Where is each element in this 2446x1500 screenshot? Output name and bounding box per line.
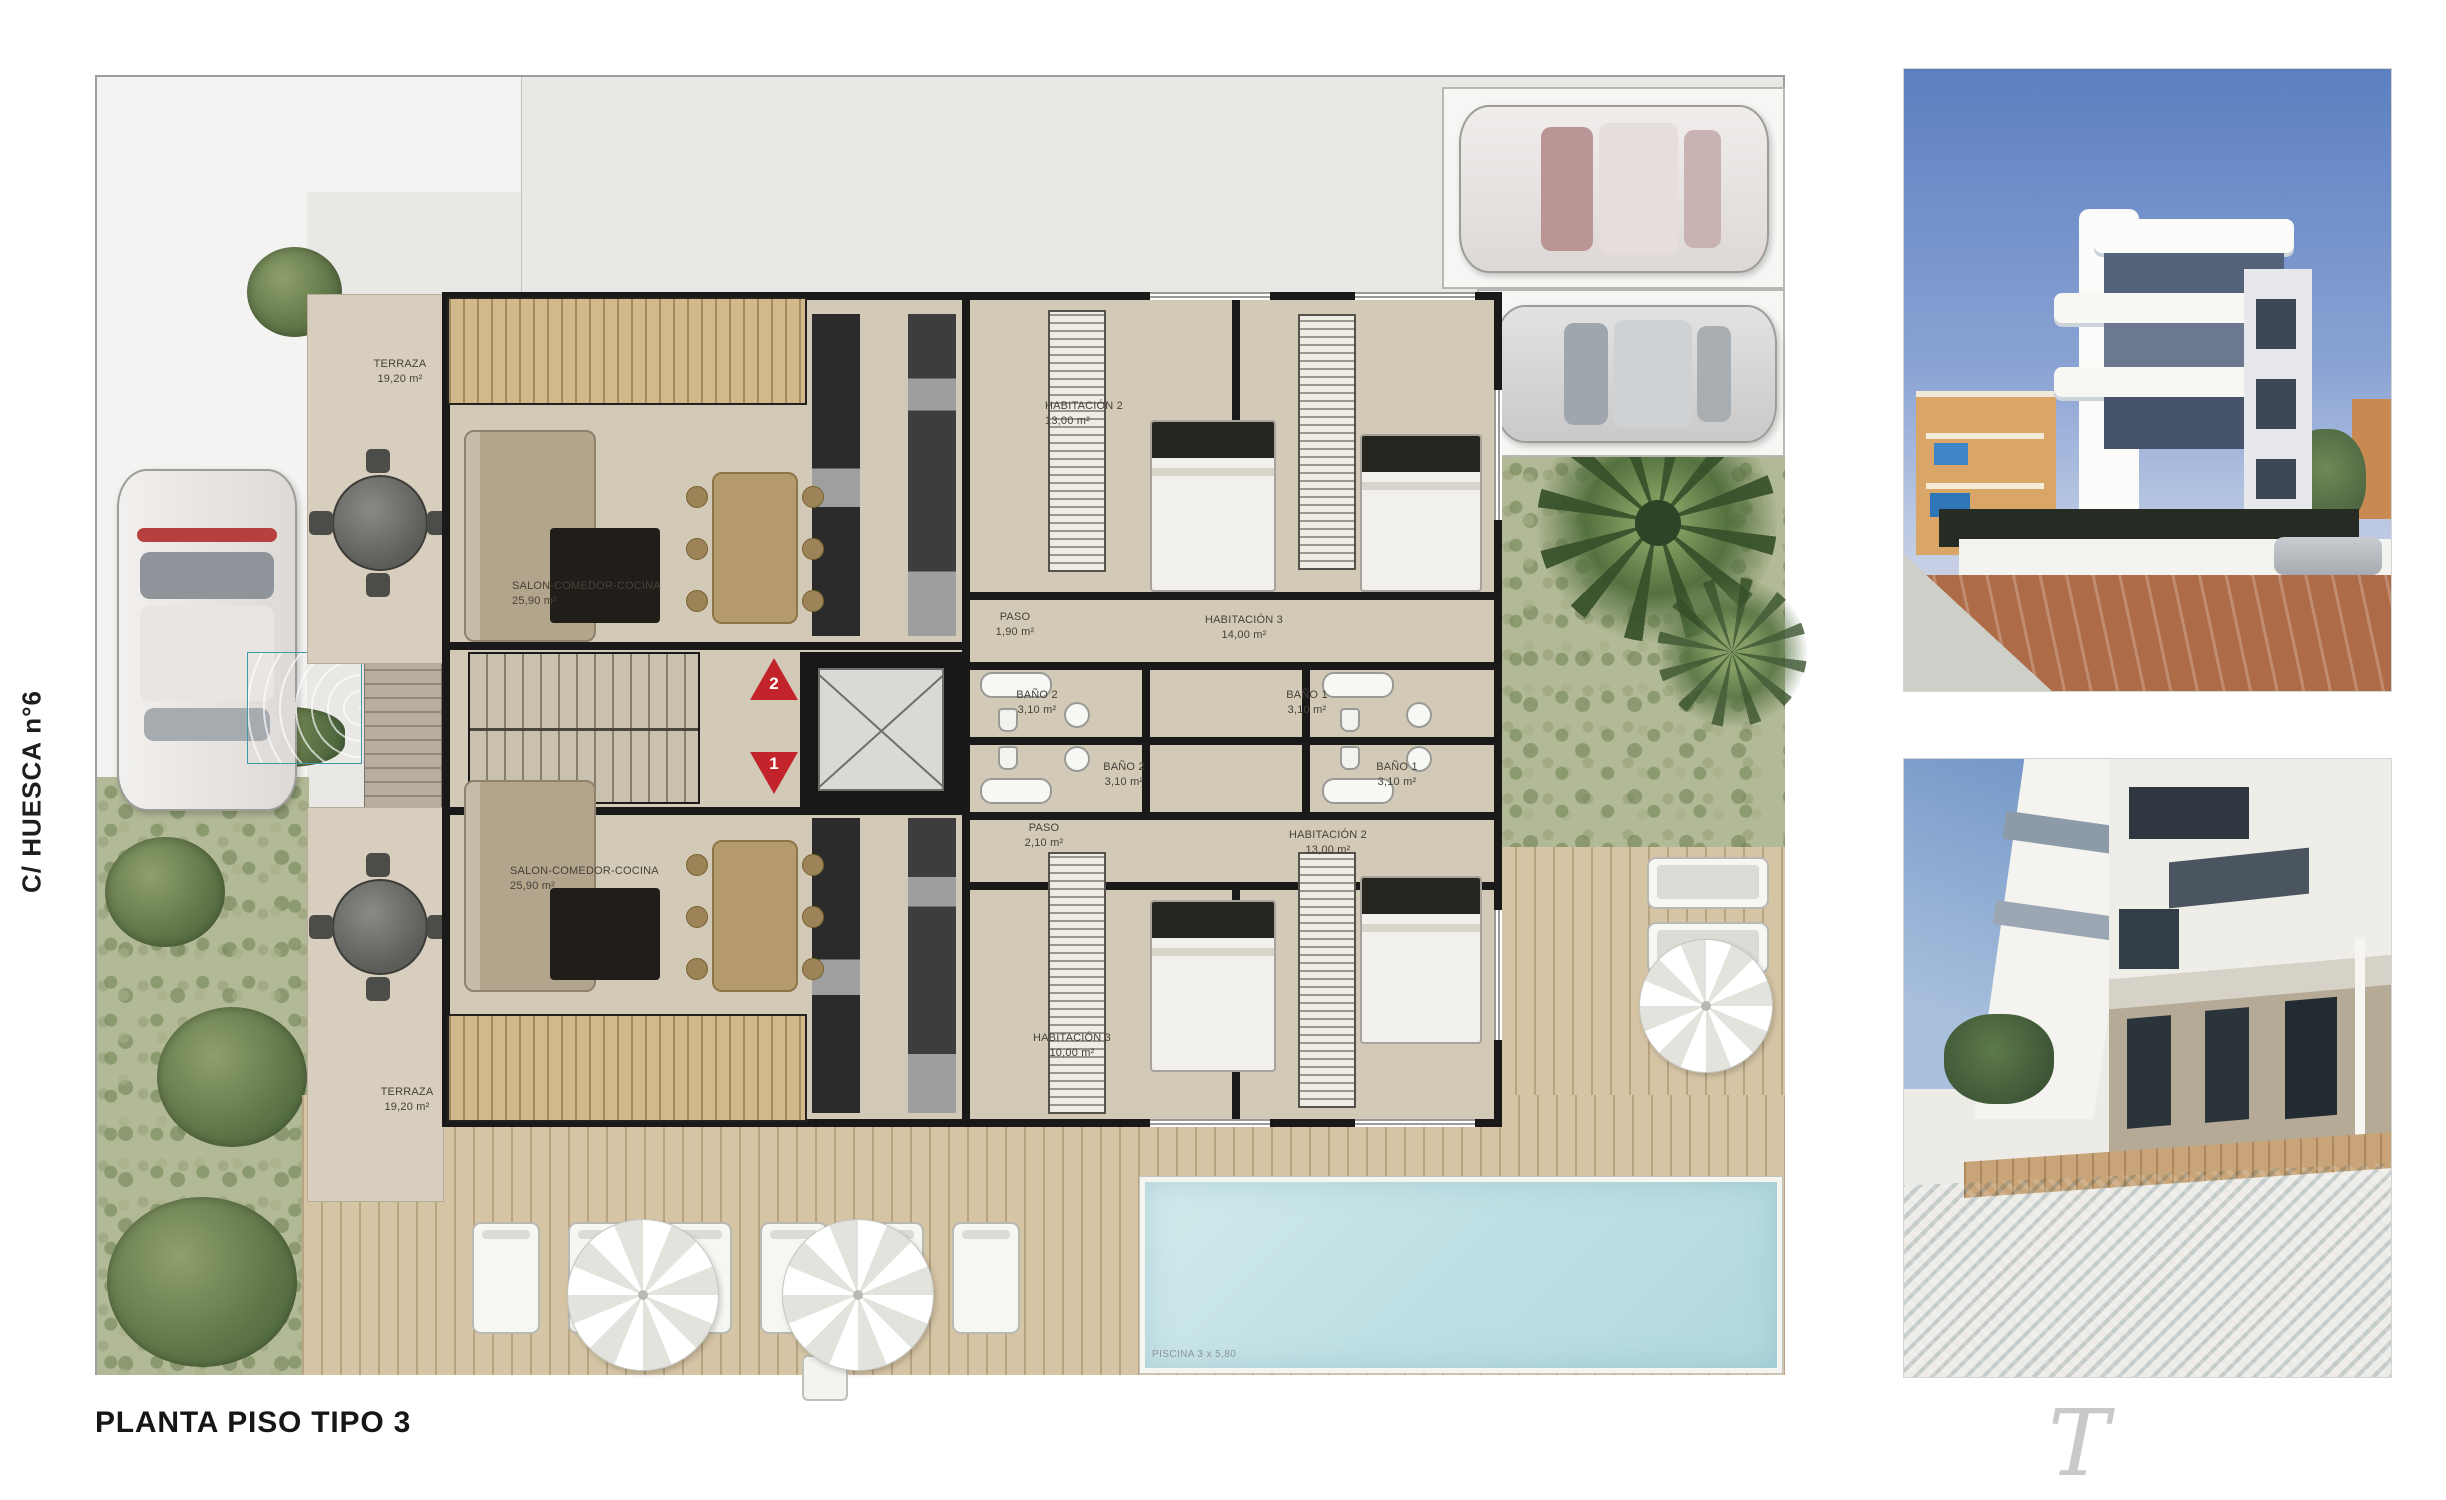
- room-label-habitacion2-lower: HABITACIÓN 213,00 m²: [1289, 828, 1367, 858]
- lounger-pad: [482, 1230, 530, 1239]
- umbrella: [1639, 939, 1773, 1073]
- wardrobe: [1048, 310, 1106, 572]
- room-label-habitacion3-upper: HABITACIÓN 314,00 m²: [1205, 613, 1283, 643]
- wardrobe: [1298, 852, 1356, 1108]
- photo-building-face: [2109, 759, 2392, 1179]
- building-footprint: [442, 292, 1502, 1127]
- bathtub: [1322, 672, 1394, 698]
- chair: [802, 486, 824, 508]
- entry-steps: [364, 652, 442, 810]
- window: [1355, 292, 1475, 300]
- signature-glyph: T: [2048, 1398, 2109, 1490]
- street-area-top-left: [97, 77, 522, 192]
- window: [2285, 997, 2337, 1120]
- street-label: C/ HUESCA n°6: [17, 661, 48, 923]
- palm-tree-small: [1657, 577, 1807, 727]
- photo-pool-terrace: [1903, 758, 2392, 1378]
- photo-building-wing: [2244, 269, 2312, 519]
- room-label-habitacion2-upper: HABITACIÓN 213,00 m²: [1045, 399, 1123, 429]
- bed-fold: [1152, 948, 1274, 956]
- wall: [962, 737, 1494, 745]
- terrace-table-upper: [332, 475, 428, 571]
- photo-foliage: [1944, 1014, 2054, 1104]
- lounger-pad: [1657, 865, 1759, 899]
- car-roof: [1599, 123, 1679, 254]
- chair: [309, 915, 333, 939]
- toilet: [1340, 746, 1360, 770]
- umbrella-hub: [1701, 1001, 1711, 1011]
- bed: [1150, 420, 1276, 592]
- room-label-habitacion3-lower: HABITACIÓN 310,00 m²: [1033, 1031, 1111, 1061]
- wall: [1302, 662, 1310, 812]
- room-label-terraza-upper: TERRAZA19,20 m²: [374, 357, 427, 387]
- window: [1150, 292, 1270, 300]
- umbrella: [782, 1219, 934, 1371]
- photo-pool-water: [1904, 1159, 2391, 1378]
- chair: [686, 538, 708, 560]
- chair: [802, 906, 824, 928]
- sink: [1406, 702, 1432, 728]
- sun-lounger: [472, 1222, 540, 1334]
- kitchen-counter: [812, 314, 860, 636]
- wardrobe: [1298, 314, 1356, 570]
- pool: [1140, 1177, 1782, 1373]
- page-title: PLANTA PISO TIPO 3: [95, 1406, 411, 1440]
- kitchen-counter: [908, 818, 956, 1113]
- bed-pillow: [1152, 422, 1274, 458]
- window: [2256, 299, 2296, 349]
- car-rear-window: [1684, 130, 1721, 248]
- bed-fold: [1362, 924, 1480, 932]
- toilet: [1340, 708, 1360, 732]
- bed: [1360, 876, 1482, 1044]
- window: [2127, 1015, 2171, 1129]
- chair: [802, 854, 824, 876]
- photo-parked-car: [2274, 537, 2382, 575]
- bush: [105, 837, 225, 947]
- rug-lower: [550, 888, 660, 980]
- chair: [686, 854, 708, 876]
- window: [2256, 379, 2296, 429]
- floor-plan: PISCINA 3 x 5,80: [95, 75, 1785, 1375]
- window: [1494, 390, 1502, 520]
- toilet: [998, 708, 1018, 732]
- bed-pillow: [1152, 902, 1274, 938]
- photo-pillar: [2355, 939, 2365, 1140]
- garage-ramp: [247, 652, 362, 764]
- chair: [686, 486, 708, 508]
- floor-marker-1: 1: [750, 752, 798, 794]
- blue-awning: [1934, 443, 1968, 465]
- chair: [802, 590, 824, 612]
- room-label-terraza-lower: TERRAZA19,20 m²: [381, 1085, 434, 1115]
- chair: [686, 906, 708, 928]
- sink: [1064, 702, 1090, 728]
- floor-marker-2: 2: [750, 658, 798, 700]
- wood-terrace-upper: [447, 297, 807, 405]
- kitchen-counter: [908, 314, 956, 636]
- bed: [1360, 434, 1482, 592]
- car-front-stripe: [137, 528, 278, 542]
- plot-boundary-line: [521, 77, 522, 292]
- pool-label: PISCINA 3 x 5,80: [1152, 1349, 1236, 1360]
- chair: [309, 511, 333, 535]
- room-label-banyo2-lower: BAÑO 23,10 m²: [1103, 760, 1145, 790]
- bed: [1150, 900, 1276, 1072]
- room-label-salon-upper: SALON-COMEDOR-COCINA25,90 m²: [512, 579, 661, 609]
- car-windshield: [1541, 127, 1593, 252]
- window: [2119, 909, 2179, 969]
- umbrella-hub: [638, 1290, 648, 1300]
- wall: [962, 300, 970, 1119]
- wardrobe: [1048, 852, 1106, 1114]
- sink: [1064, 746, 1090, 772]
- chair: [366, 449, 390, 473]
- chair: [366, 573, 390, 597]
- car-rear-window: [1697, 326, 1730, 422]
- car-roof: [1614, 320, 1692, 427]
- wall: [962, 812, 1494, 820]
- window: [1355, 1119, 1475, 1127]
- dining-table-upper: [712, 472, 798, 624]
- wood-terrace-lower: [447, 1014, 807, 1122]
- stair-rail: [470, 728, 698, 731]
- window: [2256, 459, 2296, 499]
- umbrella: [567, 1219, 719, 1371]
- bed-fold: [1152, 468, 1274, 476]
- chair: [366, 853, 390, 877]
- car-parking-bottom: [1495, 305, 1777, 443]
- bed-pillow: [1362, 436, 1480, 472]
- umbrella-hub: [853, 1290, 863, 1300]
- car-windshield: [1564, 323, 1608, 425]
- bush: [157, 1007, 307, 1147]
- palm-tree-trunk: [1635, 500, 1681, 546]
- chair: [802, 538, 824, 560]
- window: [2129, 787, 2249, 839]
- brochure-page: PISCINA 3 x 5,80: [0, 0, 2446, 1500]
- photo-building-exterior: [1903, 68, 2392, 692]
- bed-pillow: [1362, 878, 1480, 914]
- chair: [802, 958, 824, 980]
- wall: [962, 662, 1494, 670]
- window: [1494, 910, 1502, 1040]
- window: [2205, 1007, 2249, 1123]
- room-label-paso-upper: PASO1,90 m²: [996, 610, 1035, 640]
- room-label-banyo1-upper: BAÑO 13,10 m²: [1286, 688, 1328, 718]
- bathtub: [980, 778, 1052, 804]
- photo-roof-slab: [2094, 219, 2294, 253]
- chair: [686, 958, 708, 980]
- elevator-cab: [818, 668, 944, 791]
- lounger-pad: [962, 1230, 1010, 1239]
- room-label-paso-lower: PASO2,10 m²: [1025, 821, 1064, 851]
- car-windshield: [140, 552, 274, 599]
- balcony-line: [1926, 483, 2044, 489]
- balcony-line: [1926, 433, 2044, 439]
- chair: [366, 977, 390, 1001]
- room-label-banyo1-lower: BAÑO 13,10 m²: [1376, 760, 1418, 790]
- bed-fold: [1362, 482, 1480, 490]
- window: [1150, 1119, 1270, 1127]
- bush: [107, 1197, 297, 1367]
- dining-table-lower: [712, 840, 798, 992]
- terrace-table-lower: [332, 879, 428, 975]
- room-label-banyo2-upper: BAÑO 23,10 m²: [1016, 688, 1058, 718]
- toilet: [998, 746, 1018, 770]
- wall: [962, 592, 1494, 600]
- chair: [686, 590, 708, 612]
- window: [2169, 848, 2309, 909]
- wall: [450, 642, 965, 650]
- room-label-salon-lower: SALON-COMEDOR-COCINA25,90 m²: [510, 864, 659, 894]
- sun-lounger: [1647, 857, 1769, 909]
- car-parking-top: [1459, 105, 1769, 273]
- sun-lounger: [952, 1222, 1020, 1334]
